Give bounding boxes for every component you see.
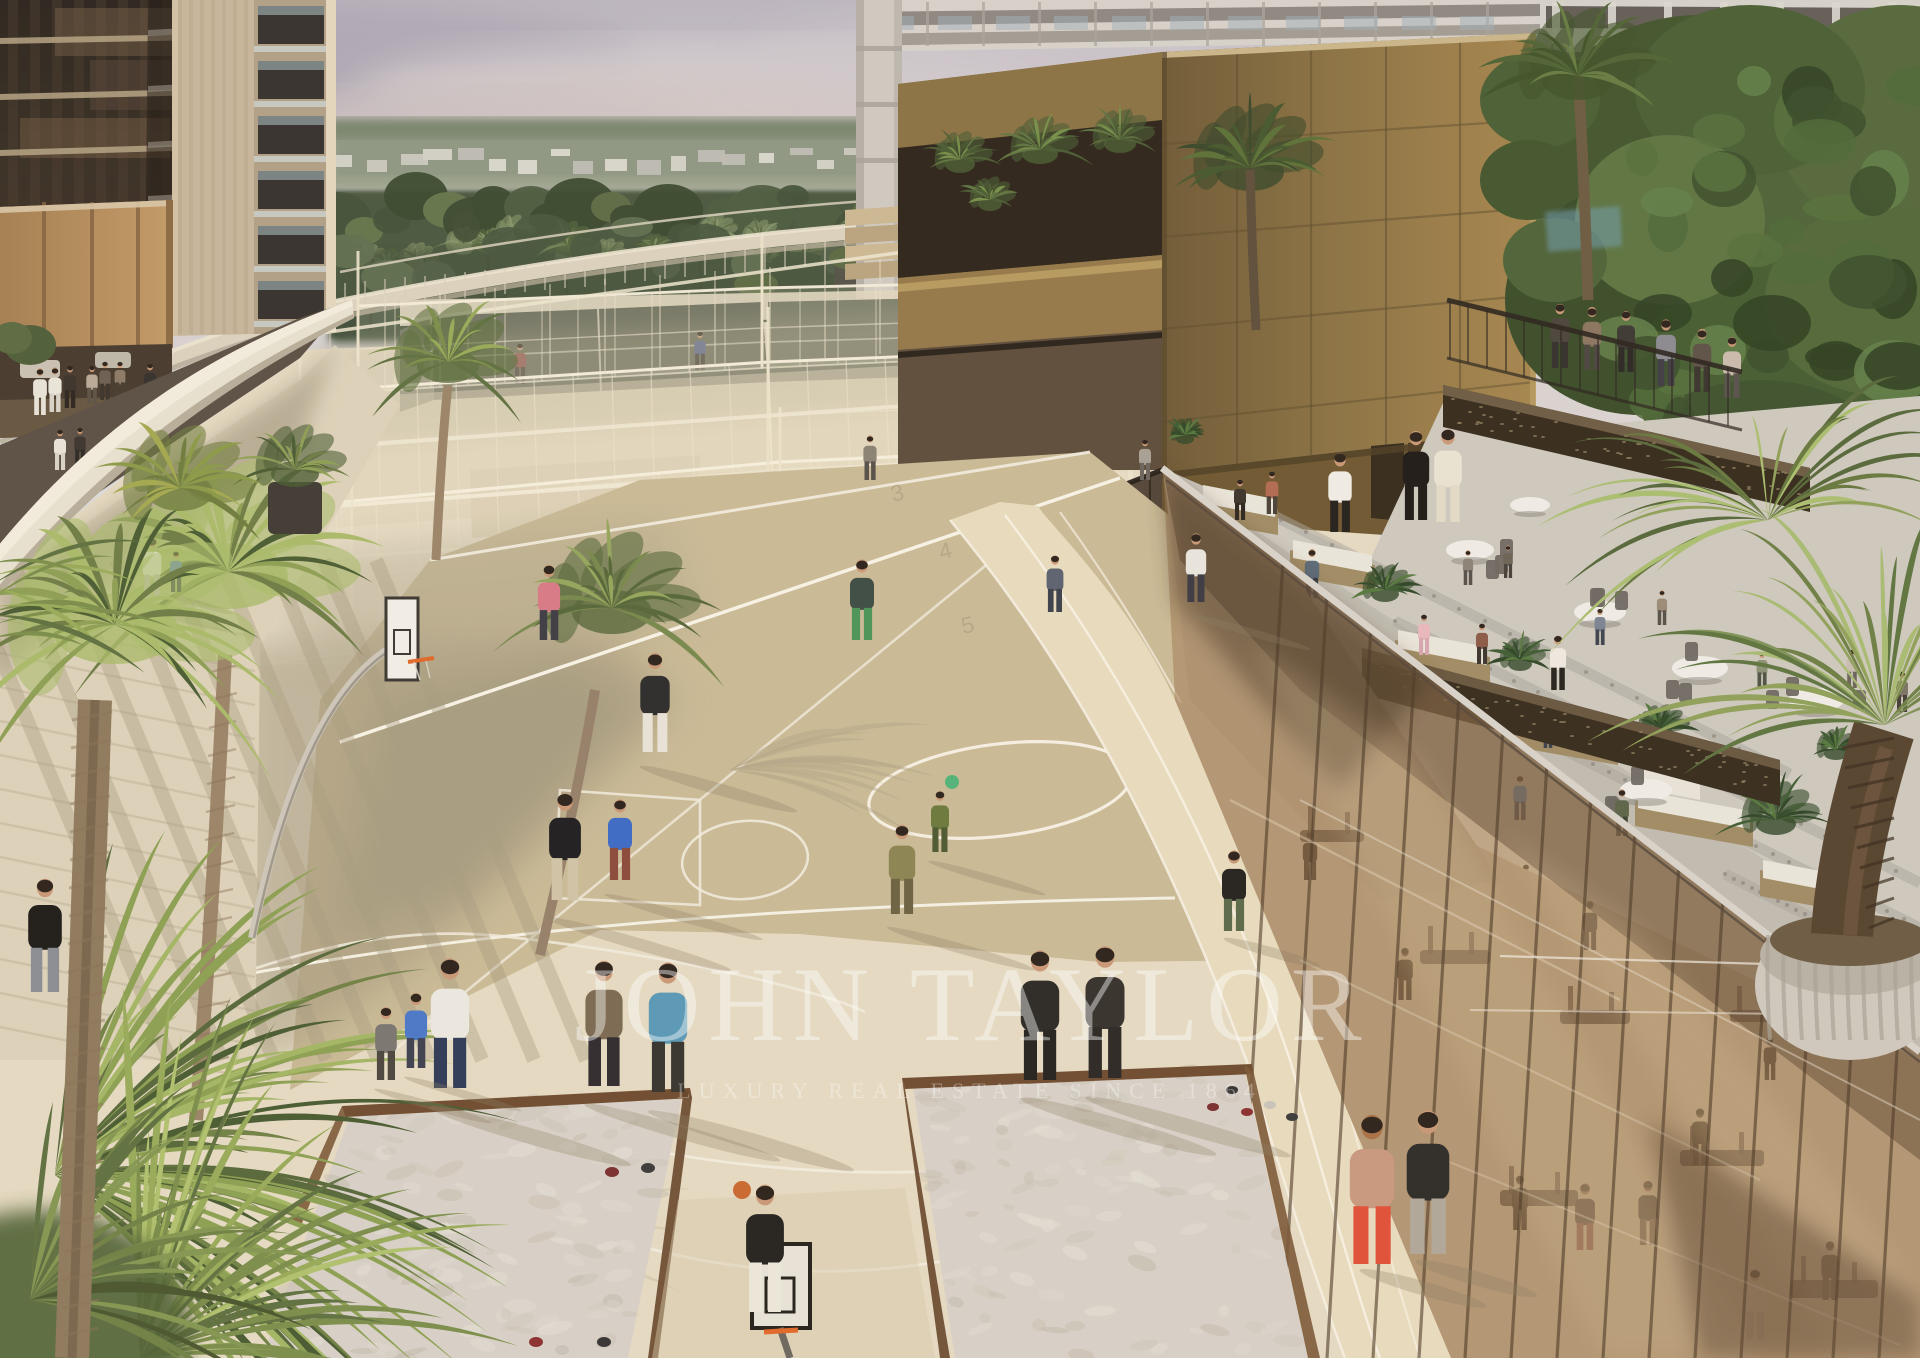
svg-text:LUXURY REAL ESTATE SINCE 1864: LUXURY REAL ESTATE SINCE 1864: [677, 1078, 1263, 1103]
svg-text:JOHN TAYLOR: JOHN TAYLOR: [574, 946, 1369, 1063]
